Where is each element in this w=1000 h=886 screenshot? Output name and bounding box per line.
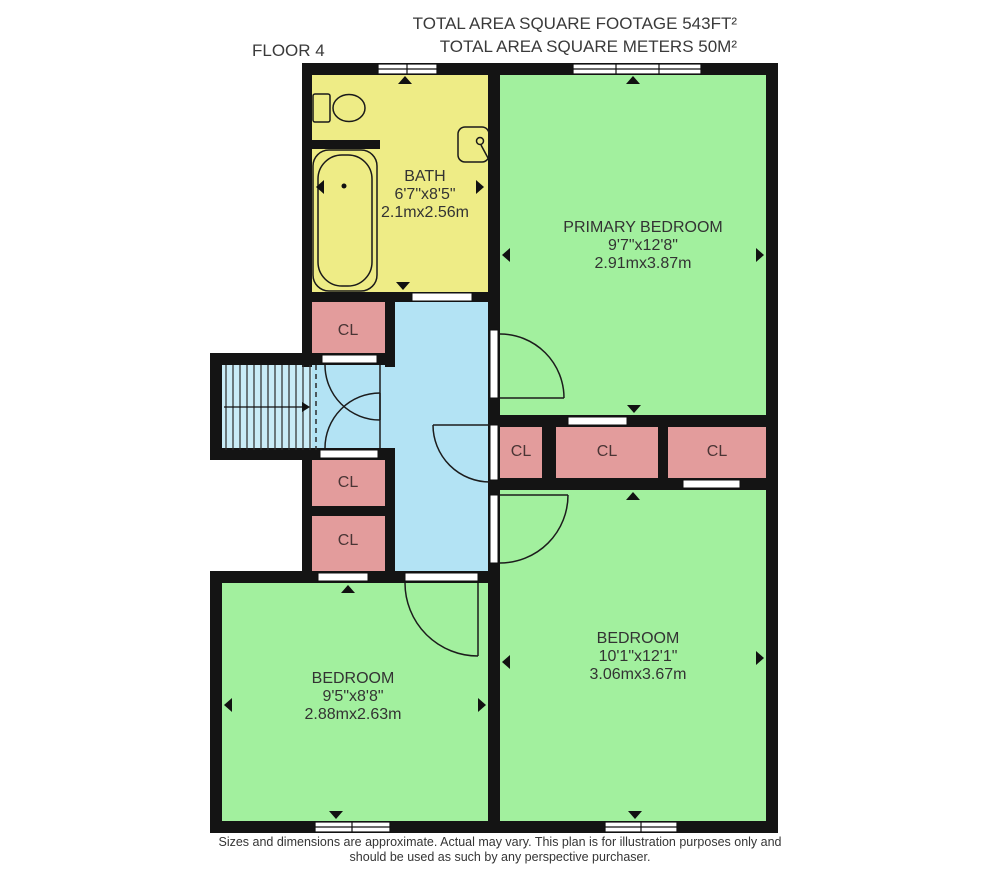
disclaimer: Sizes and dimensions are approximate. Ac… [17, 835, 983, 865]
primary-bedroom-name: PRIMARY BEDROOM [523, 219, 763, 237]
closet-bottom-label: CL [328, 531, 368, 551]
closet-row2-door-opening [568, 417, 627, 425]
disclaimer-line1: Sizes and dimensions are approximate. Ac… [17, 835, 983, 850]
closet-top-label: CL [328, 321, 368, 341]
closet-mid-door-opening [320, 450, 378, 458]
bedroom-left-door-opening [405, 573, 478, 581]
bedroom-right-name: BEDROOM [538, 630, 738, 648]
bath-door-opening [412, 293, 472, 301]
bath-name: BATH [325, 168, 525, 186]
primary-bedroom-dim-m: 2.91mx3.87m [523, 255, 763, 273]
closet-top-door-opening [322, 355, 377, 363]
floorplan-drawing [0, 0, 1000, 886]
primary-door-opening [490, 330, 498, 398]
bedroom-right-dim-m: 3.06mx3.67m [538, 666, 738, 684]
closet-bottom-door-opening [318, 573, 368, 581]
bath-window [378, 64, 437, 74]
bedroom-left-dim-m: 2.88mx2.63m [253, 706, 453, 724]
floorplan-page: FLOOR 4 TOTAL AREA SQUARE FOOTAGE 543FT²… [0, 0, 1000, 886]
bedroom-left-window [315, 822, 390, 832]
bedroom-right-label: BEDROOM 10'1"x12'1" 3.06mx3.67m [538, 630, 738, 684]
closet-row2-label: CL [587, 442, 627, 462]
closet-row3-label: CL [697, 442, 737, 462]
bedroom-left-name: BEDROOM [253, 670, 453, 688]
bath-label: BATH 6'7"x8'5" 2.1mx2.56m [325, 168, 525, 222]
primary-bedroom-label: PRIMARY BEDROOM 9'7"x12'8" 2.91mx3.87m [523, 219, 763, 273]
bedroom-right-window [605, 822, 677, 832]
bedroom-right-dim-ft: 10'1"x12'1" [538, 648, 738, 666]
bedroom-left-dim-ft: 9'5"x8'8" [253, 688, 453, 706]
bedroom-left-label: BEDROOM 9'5"x8'8" 2.88mx2.63m [253, 670, 453, 724]
closet-row1-door-opening [490, 425, 498, 480]
closet-row3-door-opening [683, 480, 740, 488]
closet-row1-label: CL [501, 442, 541, 462]
disclaimer-line2: should be used as such by any perspectiv… [17, 850, 983, 865]
primary-bedroom-dim-ft: 9'7"x12'8" [523, 237, 763, 255]
bath-dim-ft: 6'7"x8'5" [325, 186, 525, 204]
closet-mid-label: CL [328, 473, 368, 493]
bath-dim-m: 2.1mx2.56m [325, 204, 525, 222]
bedroom-right-door-opening [490, 495, 498, 563]
primary-bedroom-window [573, 64, 701, 74]
